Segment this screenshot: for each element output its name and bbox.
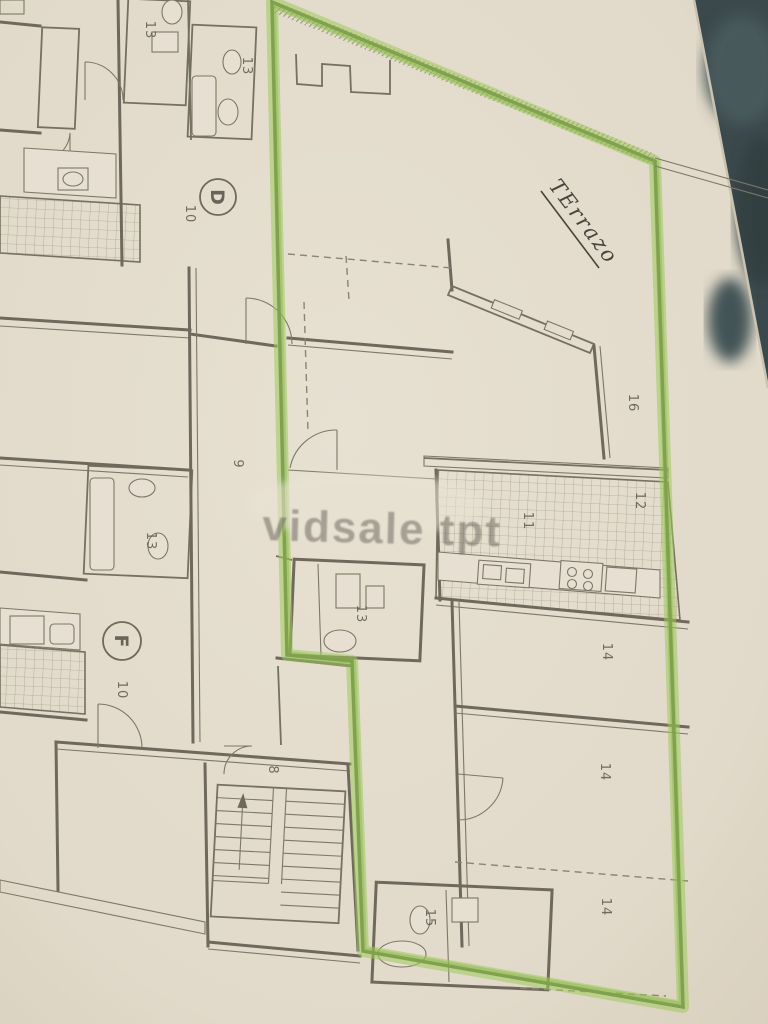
photo-shading bbox=[0, 0, 768, 1024]
floorplan-photo: 13 13 10 9 13 10 16 11 12 13 14 14 14 8 … bbox=[0, 0, 768, 1024]
floorplan-drawing: 13 13 10 9 13 10 16 11 12 13 14 14 14 8 … bbox=[0, 0, 768, 1024]
